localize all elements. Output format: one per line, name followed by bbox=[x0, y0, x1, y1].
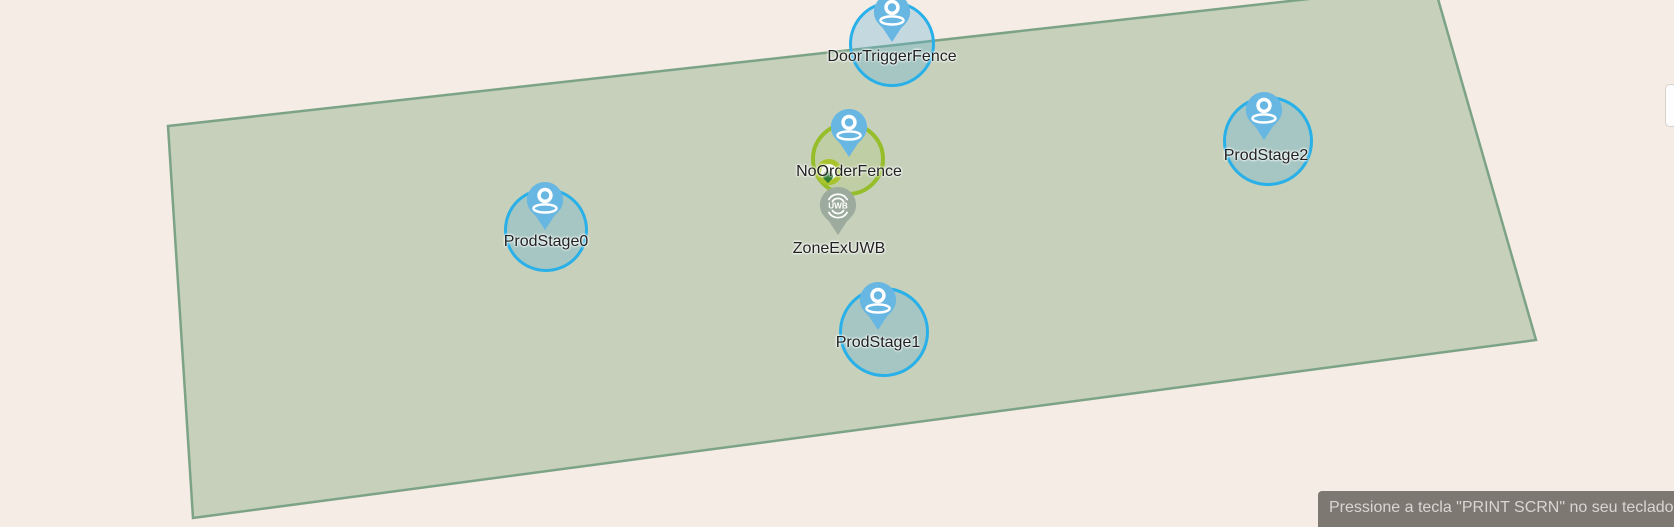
location-pin-icon[interactable] bbox=[858, 281, 898, 331]
zone-polygon-layer bbox=[0, 0, 1674, 527]
geofence-label: ZoneExUWB bbox=[793, 239, 885, 259]
printscreen-tooltip-text: Pressione a tecla "PRINT SCRN" no seu te… bbox=[1329, 499, 1674, 516]
location-pin-icon[interactable] bbox=[1244, 91, 1284, 141]
geofence-label: NoOrderFence bbox=[796, 162, 902, 182]
geofence-label: ProdStage2 bbox=[1224, 146, 1309, 166]
printscreen-tooltip: Pressione a tecla "PRINT SCRN" no seu te… bbox=[1318, 491, 1674, 527]
zone-polygon[interactable] bbox=[168, 0, 1536, 518]
vertical-scrollbar-thumb[interactable] bbox=[1665, 84, 1674, 127]
uwb-zone-pin-icon[interactable]: UWB bbox=[818, 186, 858, 236]
location-pin-icon[interactable] bbox=[525, 181, 565, 231]
geofence-label: ProdStage1 bbox=[836, 333, 921, 353]
geofence-label: DoorTriggerFence bbox=[827, 47, 956, 67]
map-canvas[interactable]: DoorTriggerFence NoOrderFence UWB ZoneEx… bbox=[0, 0, 1674, 527]
location-pin-icon[interactable] bbox=[872, 0, 912, 43]
uwb-pin-text: UWB bbox=[828, 202, 848, 211]
geofence-label: ProdStage0 bbox=[504, 232, 589, 252]
location-pin-icon[interactable] bbox=[829, 108, 869, 158]
